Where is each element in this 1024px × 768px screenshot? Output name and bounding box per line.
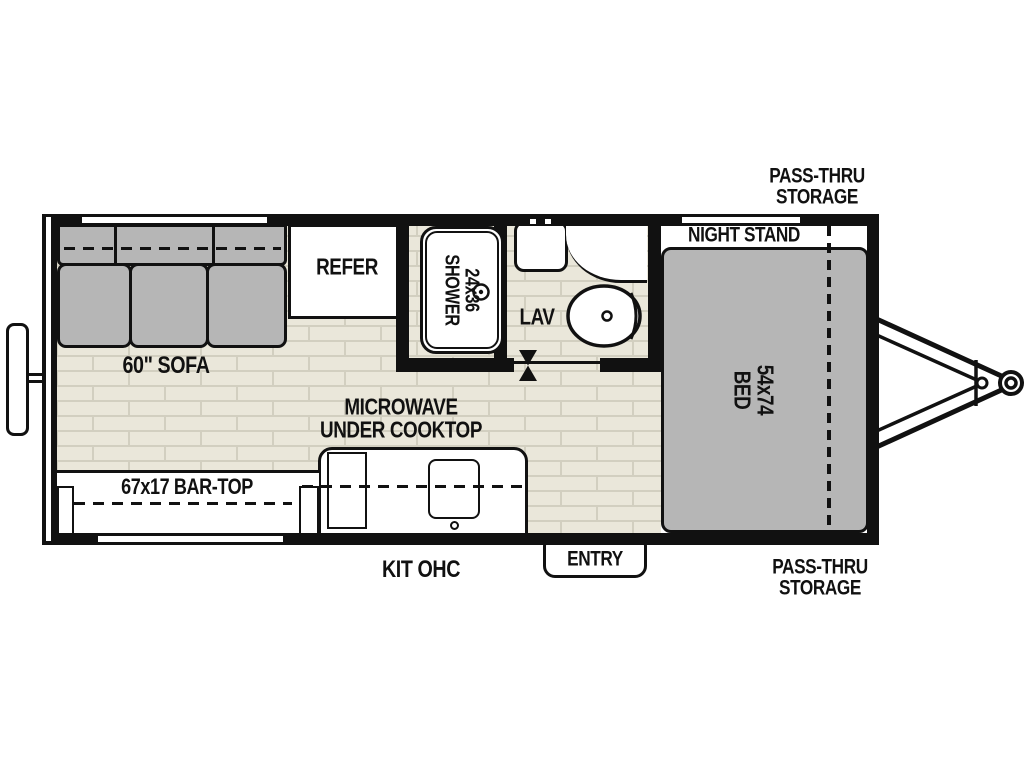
window-over-sofa	[82, 217, 267, 223]
rear-wall-gap	[46, 217, 51, 541]
sofa-label: 60" SOFA	[123, 354, 210, 378]
floorplan-canvas: PASS-THRU STORAGE NIGHT STAND 54x74 BED …	[0, 0, 1024, 768]
outer-wall-right	[867, 214, 879, 545]
kit-ohc-label: KIT OHC	[382, 558, 460, 582]
faucet-knob	[528, 217, 538, 226]
hitch-jack	[977, 378, 987, 388]
entry-label: ENTRY	[567, 550, 623, 571]
bar-top-label: 67x17 BAR-TOP	[121, 476, 253, 498]
shower-label: 24x36 SHOWER	[441, 254, 480, 325]
refer-label: REFER	[316, 256, 378, 279]
pass-thru-storage-top-label: PASS-THRU STORAGE	[769, 166, 864, 207]
accordion-door-icon	[519, 350, 537, 381]
pass-thru-storage-bottom-label: PASS-THRU STORAGE	[772, 557, 867, 598]
night-stand-label: NIGHT STAND	[688, 226, 800, 247]
window-over-bed	[682, 217, 800, 223]
window-at-bartop	[98, 536, 283, 542]
toilet	[568, 286, 640, 346]
hitch-coupler-ball	[1006, 378, 1016, 388]
faucet-knob	[543, 217, 553, 226]
bed-label: 54x74 BED	[730, 365, 777, 415]
microwave-label: MICROWAVE UNDER COOKTOP	[320, 395, 482, 440]
hitch-frame	[870, 316, 1022, 450]
lav-label: LAV	[519, 306, 554, 329]
